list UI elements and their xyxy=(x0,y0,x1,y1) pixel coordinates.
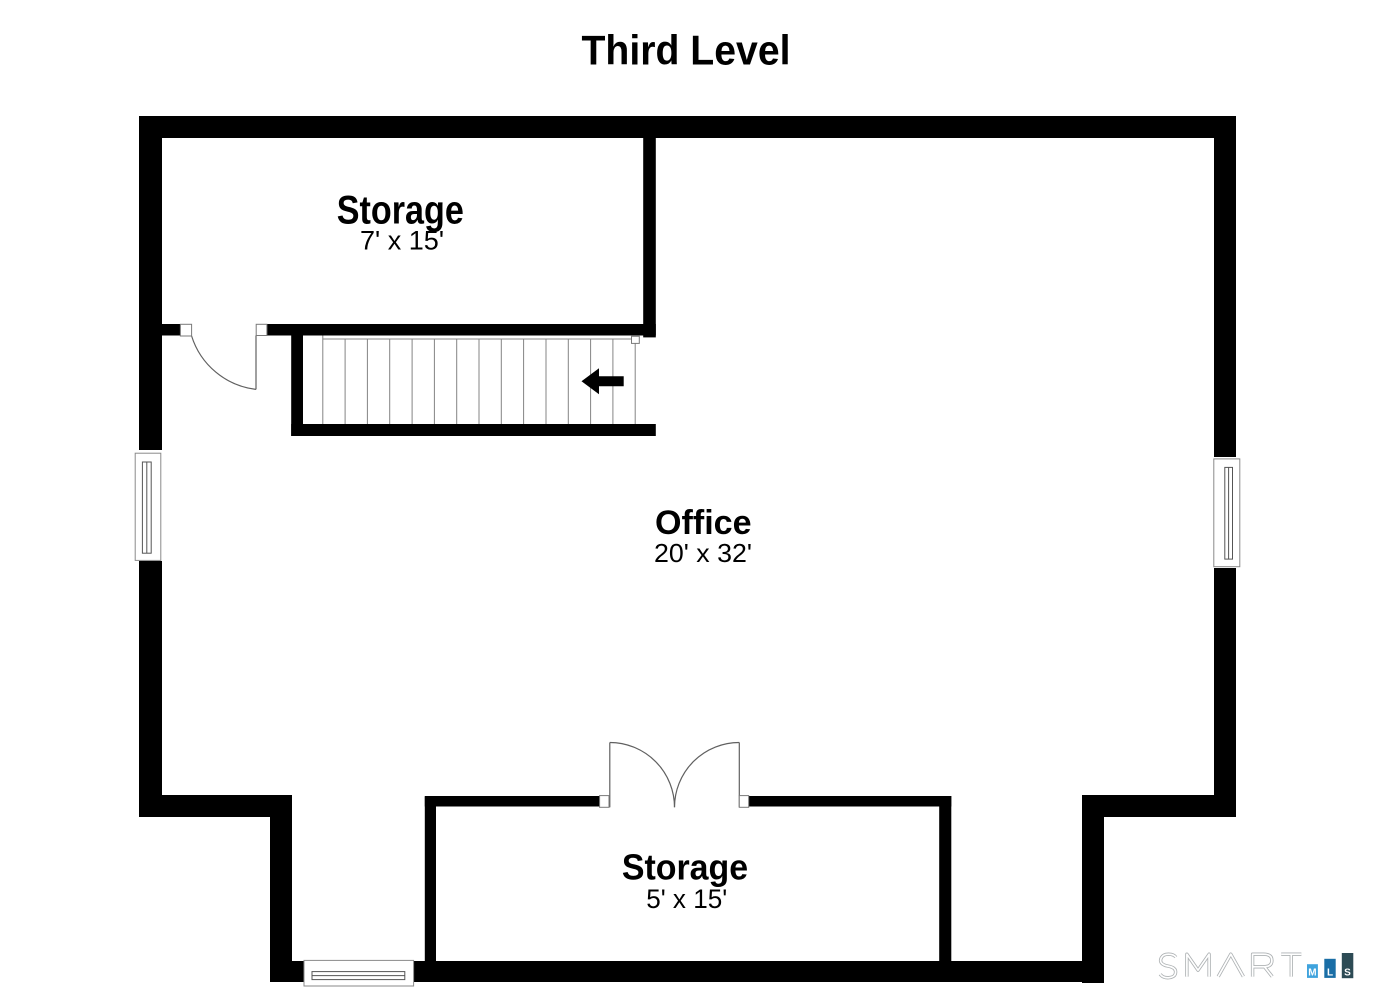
svg-text:L: L xyxy=(1327,968,1333,979)
svg-text:Office: Office xyxy=(655,504,752,542)
svg-text:5' x 15': 5' x 15' xyxy=(646,884,727,914)
svg-text:7' x 15': 7' x 15' xyxy=(360,226,444,256)
svg-text:Storage: Storage xyxy=(622,846,748,887)
svg-text:S: S xyxy=(1344,968,1351,979)
svg-text:M: M xyxy=(1308,968,1316,979)
svg-text:Third Level: Third Level xyxy=(582,27,791,74)
svg-text:20' x 32': 20' x 32' xyxy=(654,538,752,568)
